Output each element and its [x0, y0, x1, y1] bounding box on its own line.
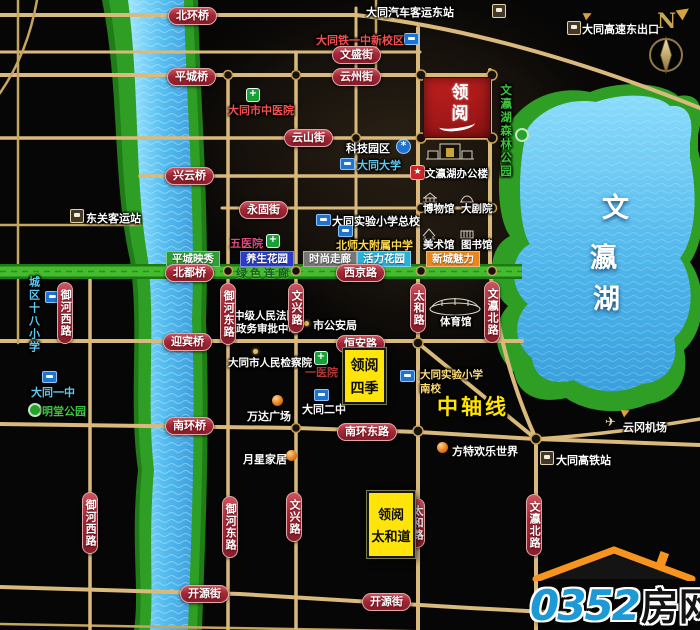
bridge-badge-beiduqiao: 北都桥 [165, 264, 214, 282]
yungang-airport-label: 云冈机场 [623, 419, 667, 435]
compass-n-label: N [657, 8, 676, 33]
road-badge-xijinglu: 西京路 [336, 264, 385, 282]
shiyan-nanxiao-label1: 大同实验小学 [420, 367, 483, 382]
hospital-cross-icon [246, 88, 260, 102]
school-icon [42, 371, 57, 383]
bridge-badge-beihuanqiao: 北环桥 [168, 7, 217, 25]
zone-badge-xincheng-meili: 新城魅力 [426, 251, 480, 267]
siji-line2: 四季 [345, 378, 384, 398]
yuexing-label: 月星家居 [243, 451, 287, 467]
lake-name-char3: 湖 [593, 277, 620, 316]
road-badge-yunshanjie: 云山街 [284, 129, 333, 147]
taihedao-line2: 太和道 [369, 526, 413, 545]
train-station-icon [540, 451, 554, 465]
school-icon [316, 214, 331, 226]
school-icon [400, 370, 415, 382]
bowuguan-label: 博物馆 [423, 201, 455, 216]
road-badge-yunzhoujie: 云州街 [332, 68, 381, 86]
brand-number: 0352 [530, 581, 639, 630]
school-icon [404, 33, 419, 45]
bus-station-icon [492, 4, 506, 18]
tech-icon [396, 139, 411, 154]
star-icon [410, 165, 425, 180]
wanda-label: 万达广场 [247, 408, 291, 424]
gaotie-label: 大同高铁站 [556, 452, 611, 468]
lingyue-project-block: 领阅 [423, 77, 491, 138]
road-badge-yuhedonglu-top: 御河东路 [220, 283, 236, 345]
brand-name: 房网 [641, 585, 700, 629]
chengqu18-label: 城区十八小学 [28, 276, 40, 354]
dajuyuan-label: 大剧院 [461, 201, 493, 216]
school-icon [338, 225, 353, 237]
siji-line1: 领阅 [345, 355, 384, 375]
brand-logo: 0352房网 www.0352fang.com [530, 543, 700, 630]
highway-exit-label: 大同高速东出口 [582, 21, 659, 37]
gold-dot [304, 321, 309, 326]
bus-station-east-label: 大同汽车客运东站 [366, 4, 454, 20]
lake-name-char2: 瀛 [590, 236, 617, 275]
zhongyiyuan-label: 大同市中医院 [228, 102, 294, 118]
logo-swoosh [438, 117, 475, 133]
dongguan-station-label: 东关客运站 [86, 210, 141, 226]
hospital-cross-icon [266, 234, 280, 248]
yuhe-river [102, 0, 208, 630]
road-badge-kaiyuanjie-east: 开源街 [362, 593, 411, 611]
hospital-cross-icon [314, 351, 328, 365]
road-badge-wenyingbeilu-top: 文瀛北路 [484, 281, 500, 343]
wuyiyuan-label: 五医院 [230, 235, 263, 251]
road-badge-yonggujie: 永固街 [239, 201, 288, 219]
taihedao-line1: 领阅 [369, 504, 413, 523]
bridge-badge-nanhuanqiao: 南环桥 [165, 417, 214, 435]
bridge-badge-xingyunqiao: 兴云桥 [165, 167, 214, 185]
mall-dot-icon [272, 395, 283, 406]
mall-dot-icon [286, 450, 297, 461]
tiyuguan-label: 体育馆 [440, 314, 472, 329]
zhongzhouxian-label: 中轴线 [437, 391, 509, 421]
school-icon [314, 389, 329, 401]
datong-location-map: 北环桥 大同汽车客运东站 大同高速东出口 N 大同铁一中新校区 文盛街 平城桥 … [0, 0, 700, 630]
jianchayuan-label: 大同市人民检察院 [228, 355, 312, 370]
fangte-dot-icon [437, 442, 448, 453]
fangte-label: 方特欢乐世界 [452, 443, 518, 459]
road-badge-kaiyuanjie-west: 开源街 [180, 585, 229, 603]
road-badge-yuhexilu-bottom: 御河西路 [82, 492, 98, 554]
bangonglou-label: 文瀛湖办公楼 [425, 166, 488, 181]
road-badge-wenxinglu-bottom: 文兴路 [286, 492, 302, 542]
road-badge-nanhuandonglu: 南环东路 [337, 423, 397, 441]
tushuguan-label: 图书馆 [461, 237, 493, 252]
road-badge-yuhedonglu-bottom: 御河东路 [222, 496, 238, 558]
road-badge-wenshengjie: 文盛街 [332, 46, 381, 64]
lingyue-siji-box: 领阅 四季 [343, 348, 386, 404]
yiyiyuan-label: 一医院 [305, 364, 338, 380]
airplane-icon [605, 415, 616, 430]
lingyue-taihedao-box: 领阅 太和道 [367, 491, 415, 558]
bridge-badge-yingbinqiao: 迎宾桥 [163, 333, 212, 351]
bridge-badge-pingchengqiao: 平城桥 [167, 68, 216, 86]
meishuguan-label: 美术馆 [423, 237, 455, 252]
road-badge-wenxinglu-top: 文兴路 [288, 283, 304, 333]
road-badge-taihelu-top: 太和路 [410, 283, 426, 333]
datong-university-label: 大同大学 [357, 157, 401, 173]
mingtang-label: 明堂公园 [42, 403, 86, 419]
school-icon [340, 158, 355, 170]
bus-station-icon [70, 209, 84, 223]
datong-yizhong-label: 大同一中 [31, 384, 75, 400]
tech-park-label: 科技园区 [346, 140, 390, 156]
gold-dot [253, 349, 258, 354]
datong-erzhong-label: 大同二中 [302, 401, 346, 417]
forest-park-label: 文瀛湖森林公园 [500, 84, 512, 179]
park-icon [28, 403, 42, 417]
highway-exit-icon [567, 21, 581, 35]
gonganju-label: 市公安局 [313, 317, 357, 333]
compass [650, 37, 682, 73]
green-corridor-label: 绿色连廊 [236, 265, 292, 281]
park-icon [515, 128, 529, 142]
road-badge-yuhexilu-top: 御河西路 [57, 282, 73, 344]
brand-roof-icon [530, 543, 700, 581]
lake-name-char1: 文 [602, 186, 629, 225]
